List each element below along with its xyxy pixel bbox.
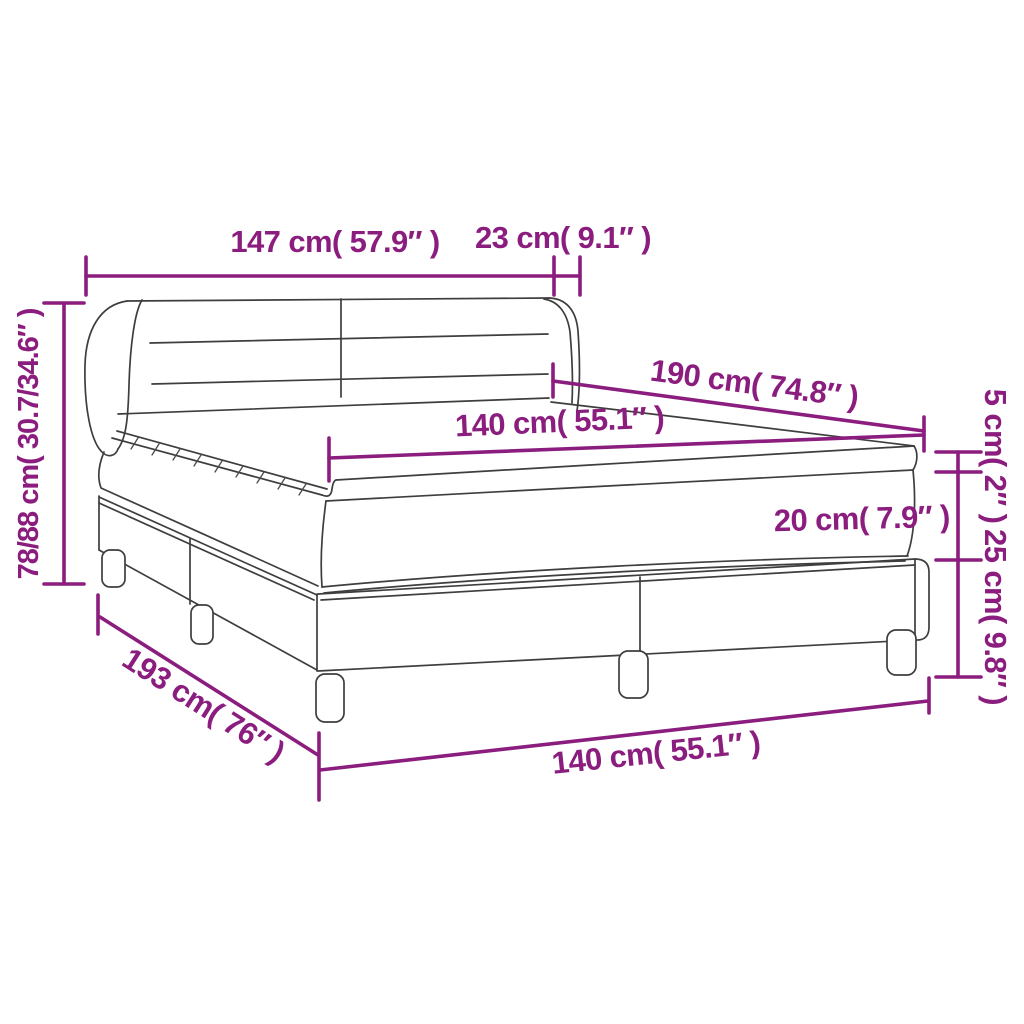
topper-seam-stitches [131, 438, 306, 495]
dim-line-mattress-width-top [329, 435, 924, 458]
topper-left-seam-outer [112, 438, 322, 495]
bed-leg [102, 550, 125, 587]
label-mattress-length: 190 cm( 74.8″ ) [648, 353, 860, 415]
base-left-top-edge [99, 497, 317, 595]
base-front-top-piping [321, 565, 915, 600]
label-wing-depth: 23 cm( 9.1″ ) [475, 220, 651, 255]
bed-diagram-svg: 147 cm( 57.9″ ) 23 cm( 9.1″ ) 78/88 cm( … [0, 0, 1024, 1024]
topper-right-corner [913, 446, 917, 470]
label-mattress-thickness: 20 cm( 7.9″ ) [773, 499, 950, 539]
bed-leg [887, 630, 916, 675]
base-front-bottom-edge [318, 640, 915, 671]
headboard-top-edge [127, 298, 549, 301]
label-base-length: 193 cm( 76″ ) [116, 641, 290, 770]
dimension-labels: 147 cm( 57.9″ ) 23 cm( 9.1″ ) 78/88 cm( … [13, 220, 1013, 781]
headboard-right-wing-inner [544, 299, 572, 403]
label-topper-thickness: 5 cm( 2″ ) [978, 389, 1013, 524]
base-left-top-piping [99, 503, 314, 600]
topper-left-seam-inner [117, 431, 327, 489]
label-base-height: 25 cm( 9.8″ ) [978, 529, 1013, 705]
headboard-left-wing-inner [118, 300, 142, 449]
base-front-top-edge [318, 559, 915, 594]
bed-leg [191, 605, 213, 644]
mattress-left-silhouette [99, 452, 318, 586]
label-headboard-width: 147 cm( 57.9″ ) [230, 224, 439, 259]
headboard-stripe-2 [152, 374, 548, 384]
bed-leg [316, 674, 344, 722]
label-mattress-width-top: 140 cm( 55.1″ ) [454, 399, 665, 443]
bed-leg [619, 651, 648, 698]
label-overall-height: 78/88 cm( 30.7/34.6″ ) [13, 308, 45, 579]
dimension-diagram: 147 cm( 57.9″ ) 23 cm( 9.1″ ) 78/88 cm( … [0, 0, 1024, 1024]
mattress-front-left-corner [321, 501, 326, 587]
headboard-stripe-1 [150, 334, 548, 343]
base-right-side [915, 559, 929, 640]
